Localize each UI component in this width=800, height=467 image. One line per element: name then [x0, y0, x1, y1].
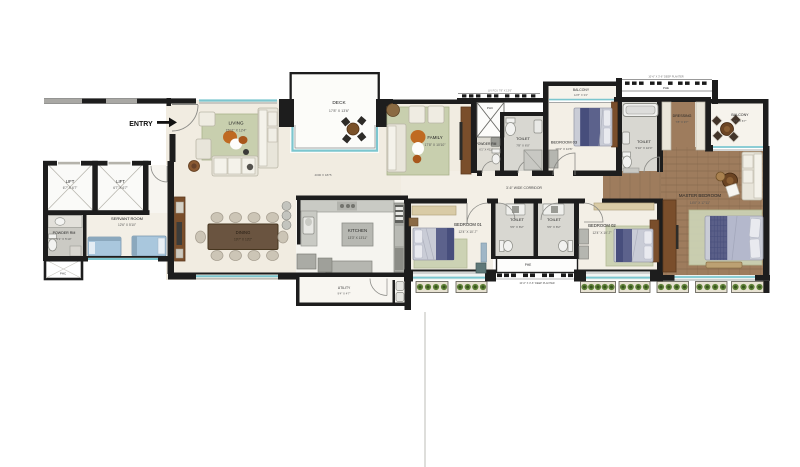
- svg-text:DRESSING: DRESSING: [673, 114, 692, 118]
- svg-text:DINING: DINING: [236, 230, 251, 235]
- svg-text:12'4" X 10'-7": 12'4" X 10'-7": [458, 230, 477, 234]
- svg-text:12'6" X 5'10": 12'6" X 5'10": [118, 223, 136, 227]
- svg-text:LIFT: LIFT: [66, 179, 75, 184]
- svg-text:9'4" X 4'7": 9'4" X 4'7": [337, 292, 350, 296]
- svg-text:10'-6" X 3'-6" DEEP PLANTER: 10'-6" X 3'-6" DEEP PLANTER: [519, 281, 554, 285]
- svg-text:LIVING: LIVING: [228, 121, 243, 126]
- svg-text:7'8" X 9'7": 7'8" X 9'7": [675, 120, 688, 124]
- svg-text:BALCONY: BALCONY: [731, 113, 749, 117]
- svg-text:TOILET: TOILET: [516, 136, 530, 141]
- svg-text:DECK: DECK: [332, 100, 346, 106]
- svg-text:PHC: PHC: [487, 106, 494, 110]
- svg-text:SERVANT ROOM: SERVANT ROOM: [111, 216, 143, 221]
- svg-text:15'11" X 12'4": 15'11" X 12'4": [226, 129, 248, 133]
- svg-text:BALCONY: BALCONY: [573, 88, 590, 92]
- svg-text:UTILITY: UTILITY: [338, 286, 351, 290]
- svg-text:BEDROOM 02: BEDROOM 02: [588, 223, 616, 228]
- svg-text:PHE: PHE: [525, 263, 532, 267]
- svg-text:13'3" X 13'11": 13'3" X 13'11": [348, 236, 368, 240]
- svg-text:FAMILY: FAMILY: [427, 135, 442, 140]
- svg-text:MASTER BEDROOM: MASTER BEDROOM: [679, 193, 722, 198]
- svg-text:17'8" X 10'10": 17'8" X 10'10": [424, 143, 446, 147]
- svg-text:PHC: PHC: [60, 272, 67, 276]
- svg-text:8'4" X 6'7": 8'4" X 6'7": [733, 119, 746, 123]
- svg-text:10'-6" X 3'-6" DEEP PLANTER: 10'-6" X 3'-6" DEEP PLANTER: [648, 75, 683, 79]
- svg-text:12'4" X 10'-7": 12'4" X 10'-7": [592, 231, 611, 235]
- svg-text:6'7" X 6'7": 6'7" X 6'7": [113, 186, 127, 190]
- svg-text:19'7" X 13'2": 19'7" X 13'2": [234, 238, 252, 242]
- svg-text:BEDROOM 03: BEDROOM 03: [551, 140, 578, 145]
- svg-text:TOILET: TOILET: [637, 139, 651, 144]
- svg-text:LIV FCU 7'8" X 13'6": LIV FCU 7'8" X 13'6": [488, 89, 512, 93]
- svg-text:12'8" X 3'2": 12'8" X 3'2": [574, 93, 588, 97]
- svg-text:5'10" X 10'0": 5'10" X 10'0": [636, 146, 653, 150]
- svg-text:5'6" X 8'2": 5'6" X 8'2": [547, 225, 561, 229]
- svg-text:PHE: PHE: [663, 86, 669, 90]
- svg-text:7'8" X 6'0": 7'8" X 6'0": [516, 144, 530, 148]
- svg-text:ENTRY: ENTRY: [129, 121, 153, 128]
- svg-text:TOILET: TOILET: [547, 217, 561, 222]
- svg-text:POWDER RM: POWDER RM: [53, 231, 76, 235]
- svg-text:6'7" X 6'7": 6'7" X 6'7": [63, 186, 77, 190]
- svg-text:3'-6" WIDE CORRIDOR: 3'-6" WIDE CORRIDOR: [506, 186, 542, 190]
- svg-text:5'1" X 5'10": 5'1" X 5'10": [56, 237, 71, 241]
- svg-text:KITCHEN: KITCHEN: [348, 228, 367, 233]
- svg-text:5'6" X 8'2": 5'6" X 8'2": [510, 225, 524, 229]
- svg-text:TOILET: TOILET: [510, 217, 524, 222]
- svg-text:BEDROOM 01: BEDROOM 01: [454, 222, 482, 227]
- svg-text:LIFT: LIFT: [116, 179, 125, 184]
- svg-text:14'0" X 17'11": 14'0" X 17'11": [690, 201, 711, 205]
- svg-text:6'1" X 4'11": 6'1" X 4'11": [479, 148, 493, 152]
- svg-text:10'4" X 10'6": 10'4" X 10'6": [555, 147, 572, 151]
- svg-text:4000 X 1875: 4000 X 1875: [314, 173, 331, 177]
- svg-text:POWDER RM: POWDER RM: [476, 142, 497, 146]
- svg-text:17'8" X 13'6": 17'8" X 13'6": [329, 109, 350, 113]
